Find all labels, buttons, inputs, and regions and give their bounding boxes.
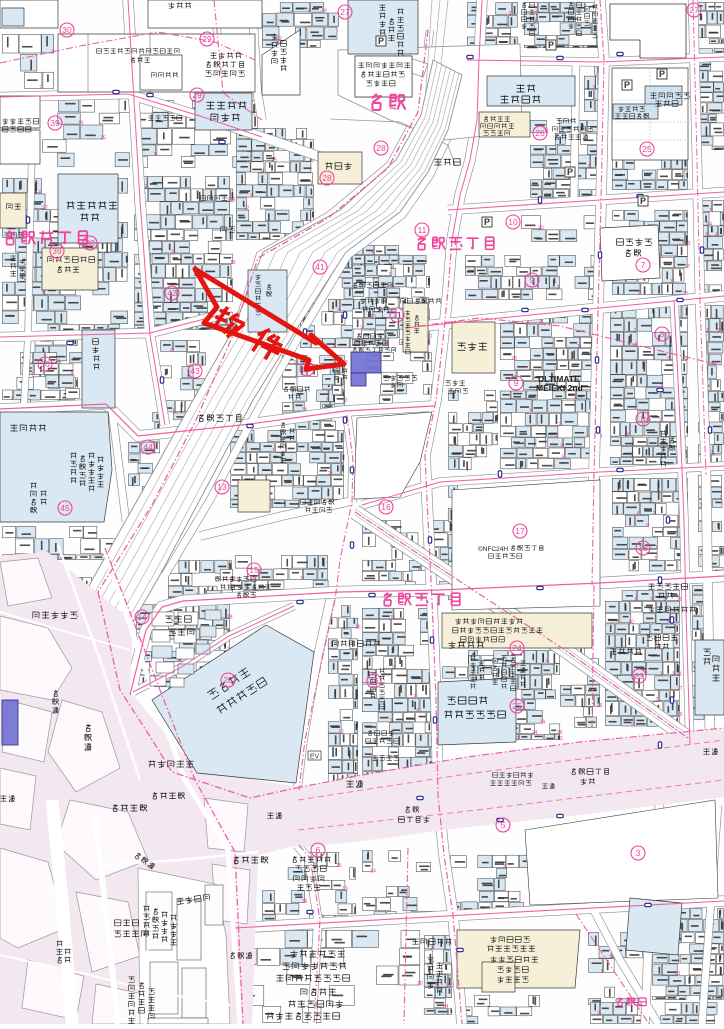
svg-text:2: 2	[250, 193, 253, 199]
svg-text:25: 25	[336, 863, 342, 869]
svg-text:©NFC24H: ©NFC24H	[478, 545, 508, 553]
svg-text:8: 8	[660, 329, 665, 339]
svg-text:13: 13	[557, 736, 563, 742]
svg-text:28: 28	[223, 675, 233, 685]
svg-text:28: 28	[322, 173, 332, 183]
svg-text:6: 6	[170, 348, 173, 354]
svg-text:9: 9	[554, 366, 557, 372]
svg-text:7: 7	[709, 208, 712, 214]
svg-text:P: P	[624, 80, 630, 90]
svg-text:27: 27	[689, 5, 699, 15]
svg-text:25: 25	[513, 662, 519, 668]
svg-text:29: 29	[202, 34, 212, 44]
svg-text:3: 3	[636, 848, 641, 858]
svg-text:7: 7	[641, 260, 646, 270]
svg-text:16: 16	[381, 502, 391, 512]
svg-text:17: 17	[685, 264, 691, 270]
svg-text:26: 26	[535, 128, 545, 138]
svg-text:29: 29	[192, 90, 202, 100]
svg-text:15: 15	[249, 565, 259, 575]
svg-text:45: 45	[60, 503, 70, 513]
svg-text:5: 5	[501, 820, 506, 830]
svg-text:6: 6	[316, 845, 321, 855]
svg-text:39: 39	[52, 246, 62, 256]
svg-text:P: P	[378, 36, 384, 46]
svg-text:11: 11	[418, 225, 427, 235]
svg-text:38: 38	[85, 238, 95, 248]
svg-text:5: 5	[631, 722, 634, 728]
svg-text:25: 25	[512, 701, 522, 711]
svg-text:41: 41	[315, 262, 325, 272]
svg-text:30: 30	[62, 25, 72, 35]
svg-text:P: P	[659, 69, 665, 79]
svg-text:10: 10	[508, 217, 518, 227]
svg-text:17: 17	[515, 526, 525, 536]
svg-text:36: 36	[40, 359, 50, 369]
svg-text:23: 23	[634, 671, 644, 681]
svg-text:7: 7	[10, 396, 13, 402]
svg-text:8: 8	[646, 523, 649, 529]
svg-text:11: 11	[393, 310, 402, 320]
svg-text:14: 14	[370, 868, 376, 874]
svg-text:P: P	[567, 167, 573, 177]
svg-text:25: 25	[100, 135, 106, 141]
svg-text:14: 14	[137, 612, 147, 622]
svg-text:26: 26	[355, 624, 361, 630]
svg-text:44: 44	[143, 442, 153, 452]
svg-text:8: 8	[641, 414, 646, 424]
svg-text:19: 19	[540, 720, 546, 726]
svg-text:P: P	[640, 196, 646, 206]
svg-text:39: 39	[50, 118, 60, 128]
svg-text:42: 42	[167, 288, 177, 298]
svg-text:9: 9	[514, 378, 519, 388]
svg-text:1: 1	[637, 291, 640, 297]
svg-text:MEIEKI 2nd: MEIEKI 2nd	[536, 383, 583, 393]
svg-text:4: 4	[51, 50, 54, 56]
svg-text:26: 26	[369, 676, 379, 686]
svg-text:26: 26	[302, 899, 308, 905]
svg-text:28: 28	[376, 143, 386, 153]
svg-text:EV: EV	[310, 754, 320, 761]
svg-text:1: 1	[631, 1020, 634, 1024]
svg-text:9: 9	[530, 275, 535, 285]
svg-text:26: 26	[597, 703, 603, 709]
svg-text:43: 43	[190, 366, 200, 376]
svg-text:27: 27	[340, 7, 350, 17]
svg-text:P: P	[548, 40, 554, 50]
svg-text:25: 25	[642, 144, 652, 154]
svg-text:2: 2	[653, 511, 656, 517]
svg-text:20: 20	[417, 981, 423, 987]
svg-text:6: 6	[418, 567, 421, 573]
svg-text:13: 13	[217, 482, 227, 492]
svg-text:18: 18	[638, 543, 648, 553]
svg-text:24: 24	[512, 643, 522, 653]
svg-text:P: P	[484, 217, 490, 227]
svg-text:2: 2	[516, 736, 519, 742]
